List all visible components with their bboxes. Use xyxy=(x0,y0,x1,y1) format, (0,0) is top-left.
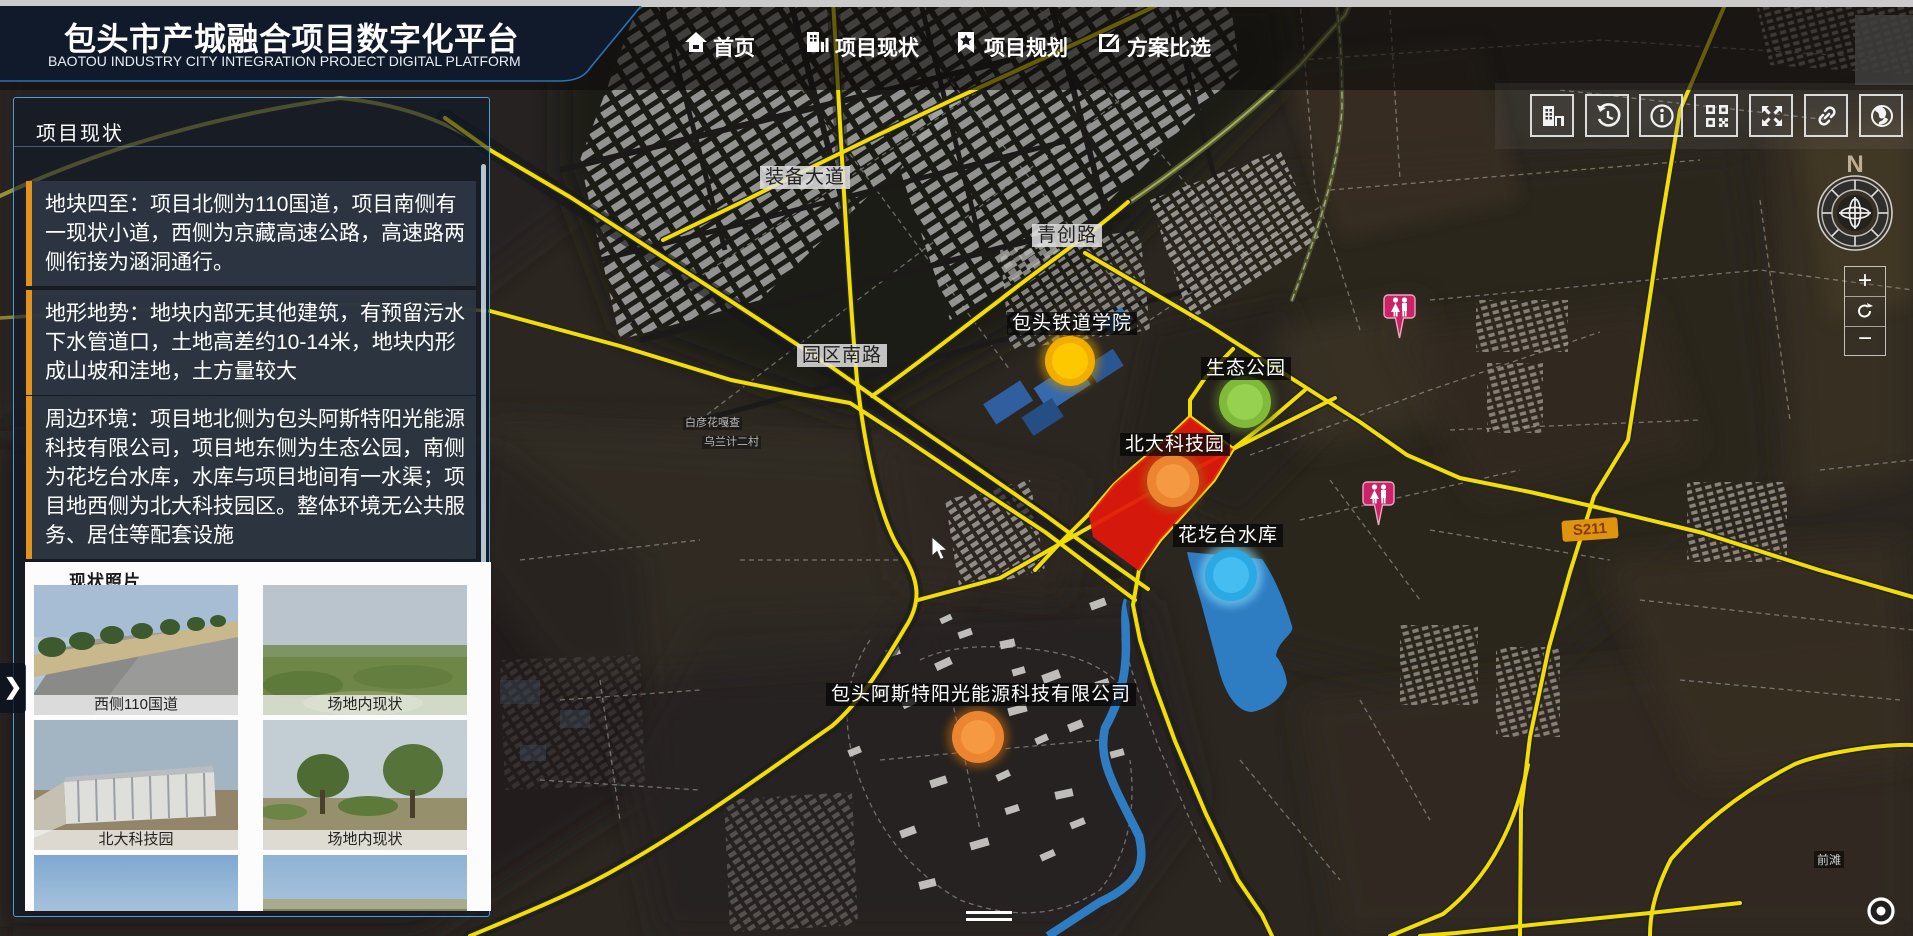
svg-text:N: N xyxy=(1846,151,1863,178)
